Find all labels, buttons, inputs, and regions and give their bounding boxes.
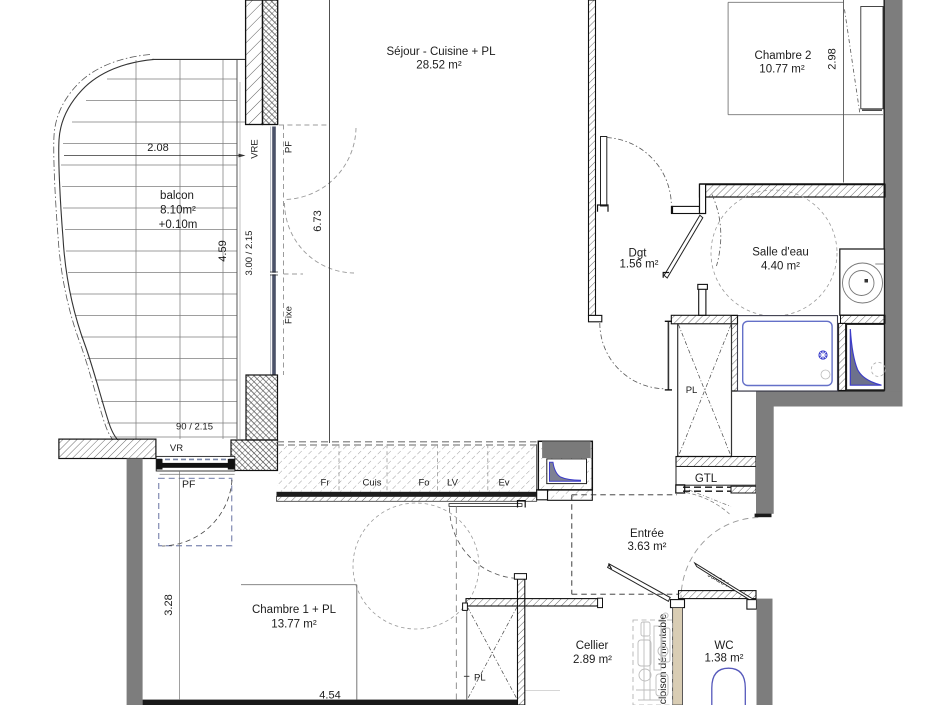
svg-text:1.56 m²: 1.56 m² (620, 259, 659, 271)
svg-text:Séjour - Cuisine + PL: Séjour - Cuisine + PL (387, 46, 497, 58)
svg-text:Cuis: Cuis (362, 478, 381, 489)
svg-text:2.89 m²: 2.89 m² (573, 654, 612, 666)
svg-text:cloison démontable: cloison démontable (657, 614, 669, 705)
svg-text:Fixe: Fixe (284, 306, 295, 324)
svg-text:3.00 / 2.15: 3.00 / 2.15 (244, 231, 255, 276)
svg-text:Fo: Fo (418, 478, 429, 489)
svg-text:2.98: 2.98 (827, 48, 839, 69)
svg-text:4.54: 4.54 (319, 690, 340, 702)
svg-text:Cellier: Cellier (576, 640, 609, 652)
svg-text:PF: PF (284, 141, 295, 153)
svg-text:90 / 2.15: 90 / 2.15 (176, 422, 213, 433)
svg-text:GTL: GTL (695, 473, 718, 485)
svg-text:3.28: 3.28 (163, 594, 175, 615)
svg-text:6.73: 6.73 (312, 210, 324, 231)
svg-text:4.59: 4.59 (217, 240, 229, 261)
svg-text:PL: PL (474, 673, 486, 684)
svg-text:28.52 m²: 28.52 m² (416, 60, 462, 72)
svg-text:Fr: Fr (321, 478, 330, 489)
svg-text:WC: WC (714, 640, 733, 652)
svg-text:PL: PL (686, 385, 698, 396)
svg-text:8.10m²: 8.10m² (160, 205, 196, 217)
svg-text:Ev: Ev (498, 478, 509, 489)
svg-text:4.40 m²: 4.40 m² (761, 261, 800, 273)
svg-text:Entrée: Entrée (630, 528, 664, 540)
svg-text:PF: PF (182, 479, 195, 491)
svg-text:balcon: balcon (160, 190, 194, 202)
svg-text:VR: VR (170, 443, 183, 454)
svg-text:1.38 m²: 1.38 m² (705, 653, 744, 665)
svg-text:VRE: VRE (250, 139, 261, 159)
svg-text:Salle d'eau: Salle d'eau (752, 247, 809, 259)
svg-text:10.77 m²: 10.77 m² (759, 64, 805, 76)
svg-text:3.63 m²: 3.63 m² (628, 541, 667, 553)
svg-text:13.77 m²: 13.77 m² (271, 619, 317, 631)
svg-text:2.08: 2.08 (147, 142, 168, 154)
svg-text:LV: LV (447, 478, 459, 489)
svg-text:Chambre 1 + PL: Chambre 1 + PL (252, 604, 337, 616)
svg-text:Chambre 2: Chambre 2 (755, 50, 812, 62)
svg-text:+0.10m: +0.10m (159, 219, 198, 231)
